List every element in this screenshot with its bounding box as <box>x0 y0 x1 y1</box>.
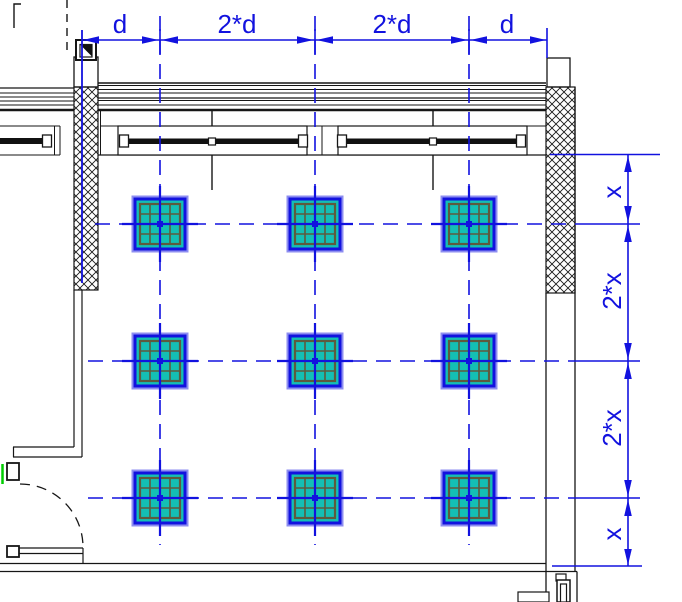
wall-edge-bracket <box>14 4 21 28</box>
pile-cap-column <box>431 460 507 536</box>
bottom-wall <box>0 564 577 602</box>
dim-label-2x2: 2*x <box>597 409 627 447</box>
bottom-right-fixtures <box>518 574 570 602</box>
pile-columns-layer <box>122 186 507 536</box>
dim-arrow <box>624 343 632 360</box>
pile-cap-column <box>277 460 353 536</box>
top-wall-lines-left <box>0 88 74 110</box>
dim-arrow <box>317 36 334 44</box>
dim-arrow <box>624 549 632 565</box>
corridor-wall <box>19 548 83 564</box>
dim-arrow <box>624 226 632 243</box>
dim-label-2d1: 2*d <box>217 9 256 39</box>
door-jamb-bottom <box>7 546 19 557</box>
dim-arrow <box>297 36 314 44</box>
section-marker <box>76 40 96 60</box>
dim-label-x1: x <box>597 186 627 199</box>
dim-label-x2: x <box>597 528 627 541</box>
window-2 <box>338 126 528 155</box>
floor-plan-canvas: d 2*d 2*d d x 2*x 2*x x <box>0 0 682 602</box>
dim-arrow <box>624 206 632 223</box>
dim-arrow <box>624 480 632 497</box>
door-swing-arc <box>20 484 83 547</box>
hatched-wall-right <box>546 87 575 293</box>
dim-arrow <box>142 36 159 44</box>
dim-label-d1: d <box>113 9 127 39</box>
dim-label-d2: d <box>500 9 514 39</box>
dim-arrow <box>624 363 632 380</box>
dim-arrow <box>624 156 632 172</box>
pile-cap-column <box>277 186 353 262</box>
dim-arrow <box>451 36 468 44</box>
window-left-wall <box>0 126 60 155</box>
pile-cap-column <box>431 323 507 399</box>
dim-label-2d2: 2*d <box>372 9 411 39</box>
pile-cap-column <box>122 323 198 399</box>
hatched-wall-left <box>74 87 98 290</box>
pile-cap-column <box>122 460 198 536</box>
door-jamb-top <box>7 463 19 480</box>
dim-label-2x1: 2*x <box>597 272 627 310</box>
dim-arrow <box>624 500 632 517</box>
right-pilaster <box>546 58 575 293</box>
door <box>3 463 84 557</box>
left-pilaster <box>74 57 98 290</box>
window-1 <box>118 126 308 155</box>
top-wall-lines <box>98 83 546 110</box>
dim-arrow <box>530 36 546 44</box>
dim-arrow <box>162 36 179 44</box>
dim-arrow <box>471 36 488 44</box>
pile-cap-column <box>277 323 353 399</box>
pile-cap-column <box>122 186 198 262</box>
left-interior-wall <box>13 290 82 457</box>
pile-cap-column <box>431 186 507 262</box>
cad-drawing: d 2*d 2*d d x 2*x 2*x x <box>0 0 682 602</box>
